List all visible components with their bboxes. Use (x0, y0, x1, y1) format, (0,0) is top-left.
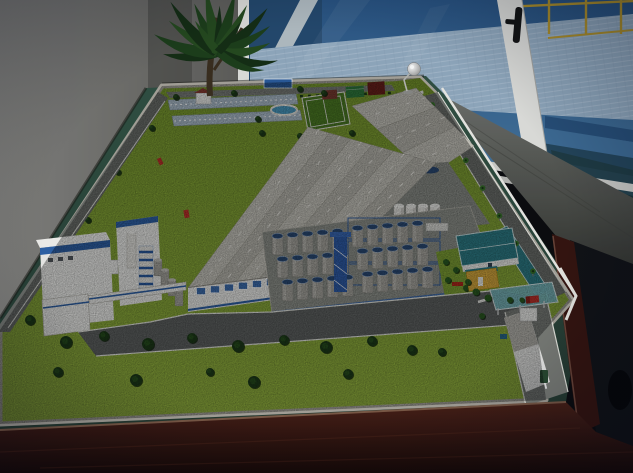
vignette-overlay (0, 0, 633, 473)
photo-stage (0, 0, 633, 473)
scene-photograph (0, 0, 633, 473)
